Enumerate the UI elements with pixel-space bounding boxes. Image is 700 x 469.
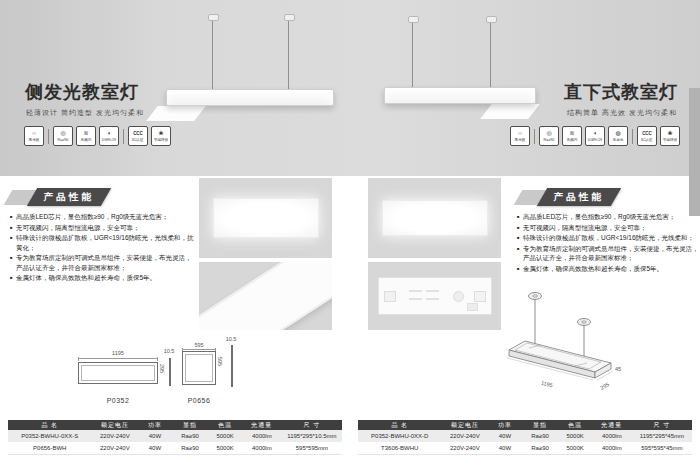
cell-model: P0352-BWHU-0XX-D bbox=[358, 430, 442, 442]
panel-light bbox=[166, 89, 334, 106]
col-header: 功率 bbox=[488, 420, 521, 430]
dim-thickness: 10.5 bbox=[222, 336, 240, 342]
feature-list-left: 高品质LED芯片，显色指数≥90，Rg0级无蓝光危害； 无可视频闪，隔离型恒流电… bbox=[10, 212, 196, 284]
cell-voltage: 220V-240V bbox=[92, 430, 139, 442]
suspension-wire bbox=[212, 18, 213, 92]
catalog-page: 侧发光教室灯 轻薄设计 简约造型 发光均匀柔和 直下式教室灯 结构简单 高光效 … bbox=[0, 0, 700, 469]
cell-size: 1195*295*10.5mm bbox=[282, 430, 342, 442]
iso-suspension-drawing bbox=[495, 286, 700, 418]
anti-glare-icon: ◖ UGR<19 bbox=[585, 126, 605, 146]
ccc-cert-icon: CCC 3C认证 bbox=[128, 126, 148, 146]
eco-icon: ❀ 节能环保 bbox=[151, 126, 171, 146]
col-header: 尺 寸 bbox=[632, 420, 692, 430]
icon-separator bbox=[48, 129, 49, 144]
col-header: 光通量 bbox=[592, 420, 632, 430]
product-photo-tilted-left bbox=[199, 262, 332, 330]
cell-cct: 5000K bbox=[558, 430, 591, 442]
cell-cct: 5000K bbox=[558, 442, 591, 455]
section-header-right: 产品性能 bbox=[518, 188, 628, 206]
eco-icon: ❀ 节能环保 bbox=[660, 126, 680, 146]
cell-size: 595*595mm bbox=[282, 442, 342, 455]
ceiling-mount bbox=[208, 14, 219, 21]
dim-height: 45 bbox=[615, 366, 621, 372]
panel-front-drawing bbox=[182, 351, 216, 385]
cert-icon-row-right: ☼ 高光效 ◎ Ra≥90 ≋ 无频闪 ◖ UGR<19 ◍ 无蓝光 CCC 3… bbox=[510, 126, 680, 146]
product-photo-front-left bbox=[199, 178, 332, 258]
section-badge: 产品性能 bbox=[27, 188, 111, 206]
product-photo-front-right bbox=[368, 178, 501, 258]
section-title-right: 产品性能 bbox=[554, 191, 604, 204]
ceiling-mount bbox=[486, 16, 497, 23]
cell-flux: 4000lm bbox=[242, 442, 282, 455]
feature-item: 专为教育场所定制的可调式悬吊组件，安装便捷，布光灵活，产品认证齐全，并符合最新国… bbox=[10, 253, 196, 272]
feature-list-right: 高品质LED芯片，显色指数≥90，Rg0级无蓝光危害； 无可视频闪，隔离型恒流电… bbox=[517, 212, 699, 274]
col-header: 额定电压 bbox=[92, 420, 139, 430]
feature-item: 特殊设计的微棱晶扩散板，UGR<19/16防眩光，光线柔和，抗黄化； bbox=[10, 233, 196, 252]
vent-slot bbox=[426, 298, 439, 300]
icon-separator bbox=[632, 129, 633, 144]
col-header: 额定电压 bbox=[442, 420, 489, 430]
product-subtitle-right: 结构简单 高光效 发光均匀柔和 bbox=[567, 108, 677, 118]
feature-item: 高品质LED芯片，显色指数≥90，Rg0级无蓝光危害； bbox=[517, 212, 699, 222]
icon-separator bbox=[534, 129, 535, 144]
ceiling-mount bbox=[408, 16, 419, 23]
cell-flux: 4000lm bbox=[242, 430, 282, 442]
no-blue-light-icon: ◍ 无蓝光 bbox=[608, 126, 628, 146]
cell-cct: 5000K bbox=[208, 430, 241, 442]
end-clip bbox=[474, 291, 486, 302]
cell-model: P0352-BWHU-0XX-S bbox=[8, 430, 92, 442]
tilted-panel-image bbox=[199, 262, 332, 330]
col-header: 光通量 bbox=[242, 420, 282, 430]
no-flicker-icon: ≋ 无频闪 bbox=[562, 126, 582, 146]
cell-power: 40W bbox=[138, 430, 171, 442]
panel-light bbox=[384, 87, 536, 104]
cell-voltage: 220V-240V bbox=[92, 442, 139, 455]
table-row: P0352-BWHU-0XX-S 220V-240V 40W Ra≥90 500… bbox=[8, 430, 342, 442]
cell-cri: Ra≥90 bbox=[172, 442, 209, 455]
driver-knob bbox=[453, 291, 464, 302]
product-title-right: 直下式教室灯 bbox=[564, 80, 678, 104]
panel-frame-line bbox=[185, 354, 213, 382]
section-header-left: 产品性能 bbox=[8, 188, 118, 206]
ccc-cert-icon: CCC 3C认证 bbox=[637, 126, 657, 146]
cell-voltage: 220V-240V bbox=[442, 430, 489, 442]
vent-slot bbox=[426, 290, 439, 292]
panel-frame-line bbox=[81, 365, 155, 381]
model-number: P0656 bbox=[182, 397, 216, 404]
high-efficacy-icon: ☼ 高光效 bbox=[510, 126, 530, 146]
spec-table-left: 品 名 额定电压 功率 显指 色温 光通量 尺 寸 P0352-BWHU-0XX… bbox=[8, 420, 342, 455]
table-header-row: 品 名 额定电压 功率 显指 色温 光通量 尺 寸 bbox=[358, 420, 692, 430]
feature-item: 金属灯体，确保高效散热和超长寿命，质保5年。 bbox=[517, 264, 699, 274]
product-photo-back-right bbox=[368, 262, 501, 330]
cell-size: 1195*295*45mm bbox=[632, 430, 692, 442]
suspension-wire bbox=[490, 20, 491, 88]
col-header: 品 名 bbox=[358, 420, 442, 430]
feature-item: 无可视频闪，隔离型恒流电源，安全可靠； bbox=[10, 223, 196, 233]
col-header: 功率 bbox=[138, 420, 171, 430]
dimension-drawings-left: 1195 295 10.5 P0352 595 595 10.5 P0656 bbox=[0, 335, 350, 420]
page-edge-shadow bbox=[689, 88, 700, 216]
feature-item: 金属灯体，确保高效散热和超长寿命，质保5年。 bbox=[10, 273, 196, 283]
suspension-wire bbox=[412, 20, 413, 88]
section-title-left: 产品性能 bbox=[44, 191, 94, 204]
panel-side-drawing bbox=[169, 358, 171, 386]
dim-thickness: 10.5 bbox=[160, 348, 178, 354]
spec-table-right: 品 名 额定电压 功率 显指 色温 光通量 尺 寸 P0352-BWHU-0XX… bbox=[358, 420, 692, 455]
lit-panel-image bbox=[213, 198, 319, 238]
table-row: P0352-BWHU-0XX-D 220V-240V 40W Ra≥90 500… bbox=[358, 430, 692, 442]
cell-power: 40W bbox=[488, 442, 521, 455]
anti-glare-icon: ◖ UGR<19 bbox=[99, 126, 119, 146]
dim-line bbox=[182, 349, 216, 350]
col-header: 显指 bbox=[172, 420, 209, 430]
panel-side-drawing bbox=[231, 345, 233, 387]
panel-back-image bbox=[378, 277, 492, 315]
table-row: P0656-BWH 220V-240V 40W Ra≥90 5000K 4000… bbox=[8, 442, 342, 455]
section-badge: 产品性能 bbox=[537, 188, 621, 206]
dim-width: 595 bbox=[217, 357, 223, 366]
feature-item: 无可视频闪，隔离型恒流电源，安全可靠； bbox=[517, 223, 699, 233]
feature-item: 专为教育场所定制的可调式悬吊组件，安装便捷，布光灵活，产品认证齐全，并符合最新国… bbox=[517, 244, 699, 263]
panel-front-drawing bbox=[78, 362, 158, 384]
vent-slot bbox=[409, 290, 422, 292]
ceiling-mount bbox=[284, 14, 295, 21]
dimension-drawing-right: 1195 295 45 bbox=[495, 286, 700, 418]
product-photo-suspended-right bbox=[384, 16, 534, 104]
feature-item: 特殊设计的微棱晶扩散板，UGR<19/16防眩光，光线柔和； bbox=[517, 233, 699, 243]
col-header: 品 名 bbox=[8, 420, 92, 430]
product-subtitle-left: 轻薄设计 简约造型 发光均匀柔和 bbox=[26, 108, 144, 118]
cell-size: 595*595*45mm bbox=[632, 442, 692, 455]
cell-model: T3606-BWHU bbox=[358, 442, 442, 455]
dim-width: 295 bbox=[159, 364, 165, 373]
col-header: 尺 寸 bbox=[282, 420, 342, 430]
cell-power: 40W bbox=[488, 430, 521, 442]
cert-icon-row-left: ☼ 高光效 ◎ Ra≥90 ≋ 无频闪 ◖ UGR<19 CCC 3C认证 ❀ … bbox=[24, 126, 171, 146]
dim-line bbox=[78, 358, 158, 359]
table-row: T3606-BWHU 220V-240V 40W Ra≥90 5000K 400… bbox=[358, 442, 692, 455]
cri-icon: ◎ Ra≥90 bbox=[539, 126, 559, 146]
dim-length: 1195 bbox=[78, 350, 158, 356]
product-title-left: 侧发光教室灯 bbox=[25, 80, 139, 104]
label-tag bbox=[467, 303, 478, 311]
icon-separator bbox=[123, 129, 124, 144]
high-efficacy-icon: ☼ 高光效 bbox=[24, 126, 44, 146]
feature-item: 高品质LED芯片，显色指数≥90，Rg0级无蓝光危害； bbox=[10, 212, 196, 222]
suspension-wire bbox=[288, 18, 289, 92]
product-photo-suspended-left bbox=[166, 14, 332, 106]
model-number: P0352 bbox=[78, 397, 158, 404]
cell-flux: 4000lm bbox=[592, 442, 632, 455]
cell-voltage: 220V-240V bbox=[442, 442, 489, 455]
cell-cri: Ra≥90 bbox=[172, 430, 209, 442]
cell-model: P0656-BWH bbox=[8, 442, 92, 455]
no-flicker-icon: ≋ 无频闪 bbox=[76, 126, 96, 146]
dim-length: 595 bbox=[182, 342, 216, 348]
col-header: 色温 bbox=[208, 420, 241, 430]
end-clip bbox=[384, 291, 396, 302]
cell-cct: 5000K bbox=[208, 442, 241, 455]
cell-power: 40W bbox=[138, 442, 171, 455]
col-header: 显指 bbox=[522, 420, 559, 430]
lit-panel-image bbox=[382, 200, 488, 236]
cell-flux: 4000lm bbox=[592, 430, 632, 442]
col-header: 色温 bbox=[558, 420, 591, 430]
vent-slot bbox=[409, 298, 422, 300]
cell-cri: Ra≥90 bbox=[522, 430, 559, 442]
cri-icon: ◎ Ra≥90 bbox=[53, 126, 73, 146]
cell-cri: Ra≥90 bbox=[522, 442, 559, 455]
table-header-row: 品 名 额定电压 功率 显指 色温 光通量 尺 寸 bbox=[8, 420, 342, 430]
